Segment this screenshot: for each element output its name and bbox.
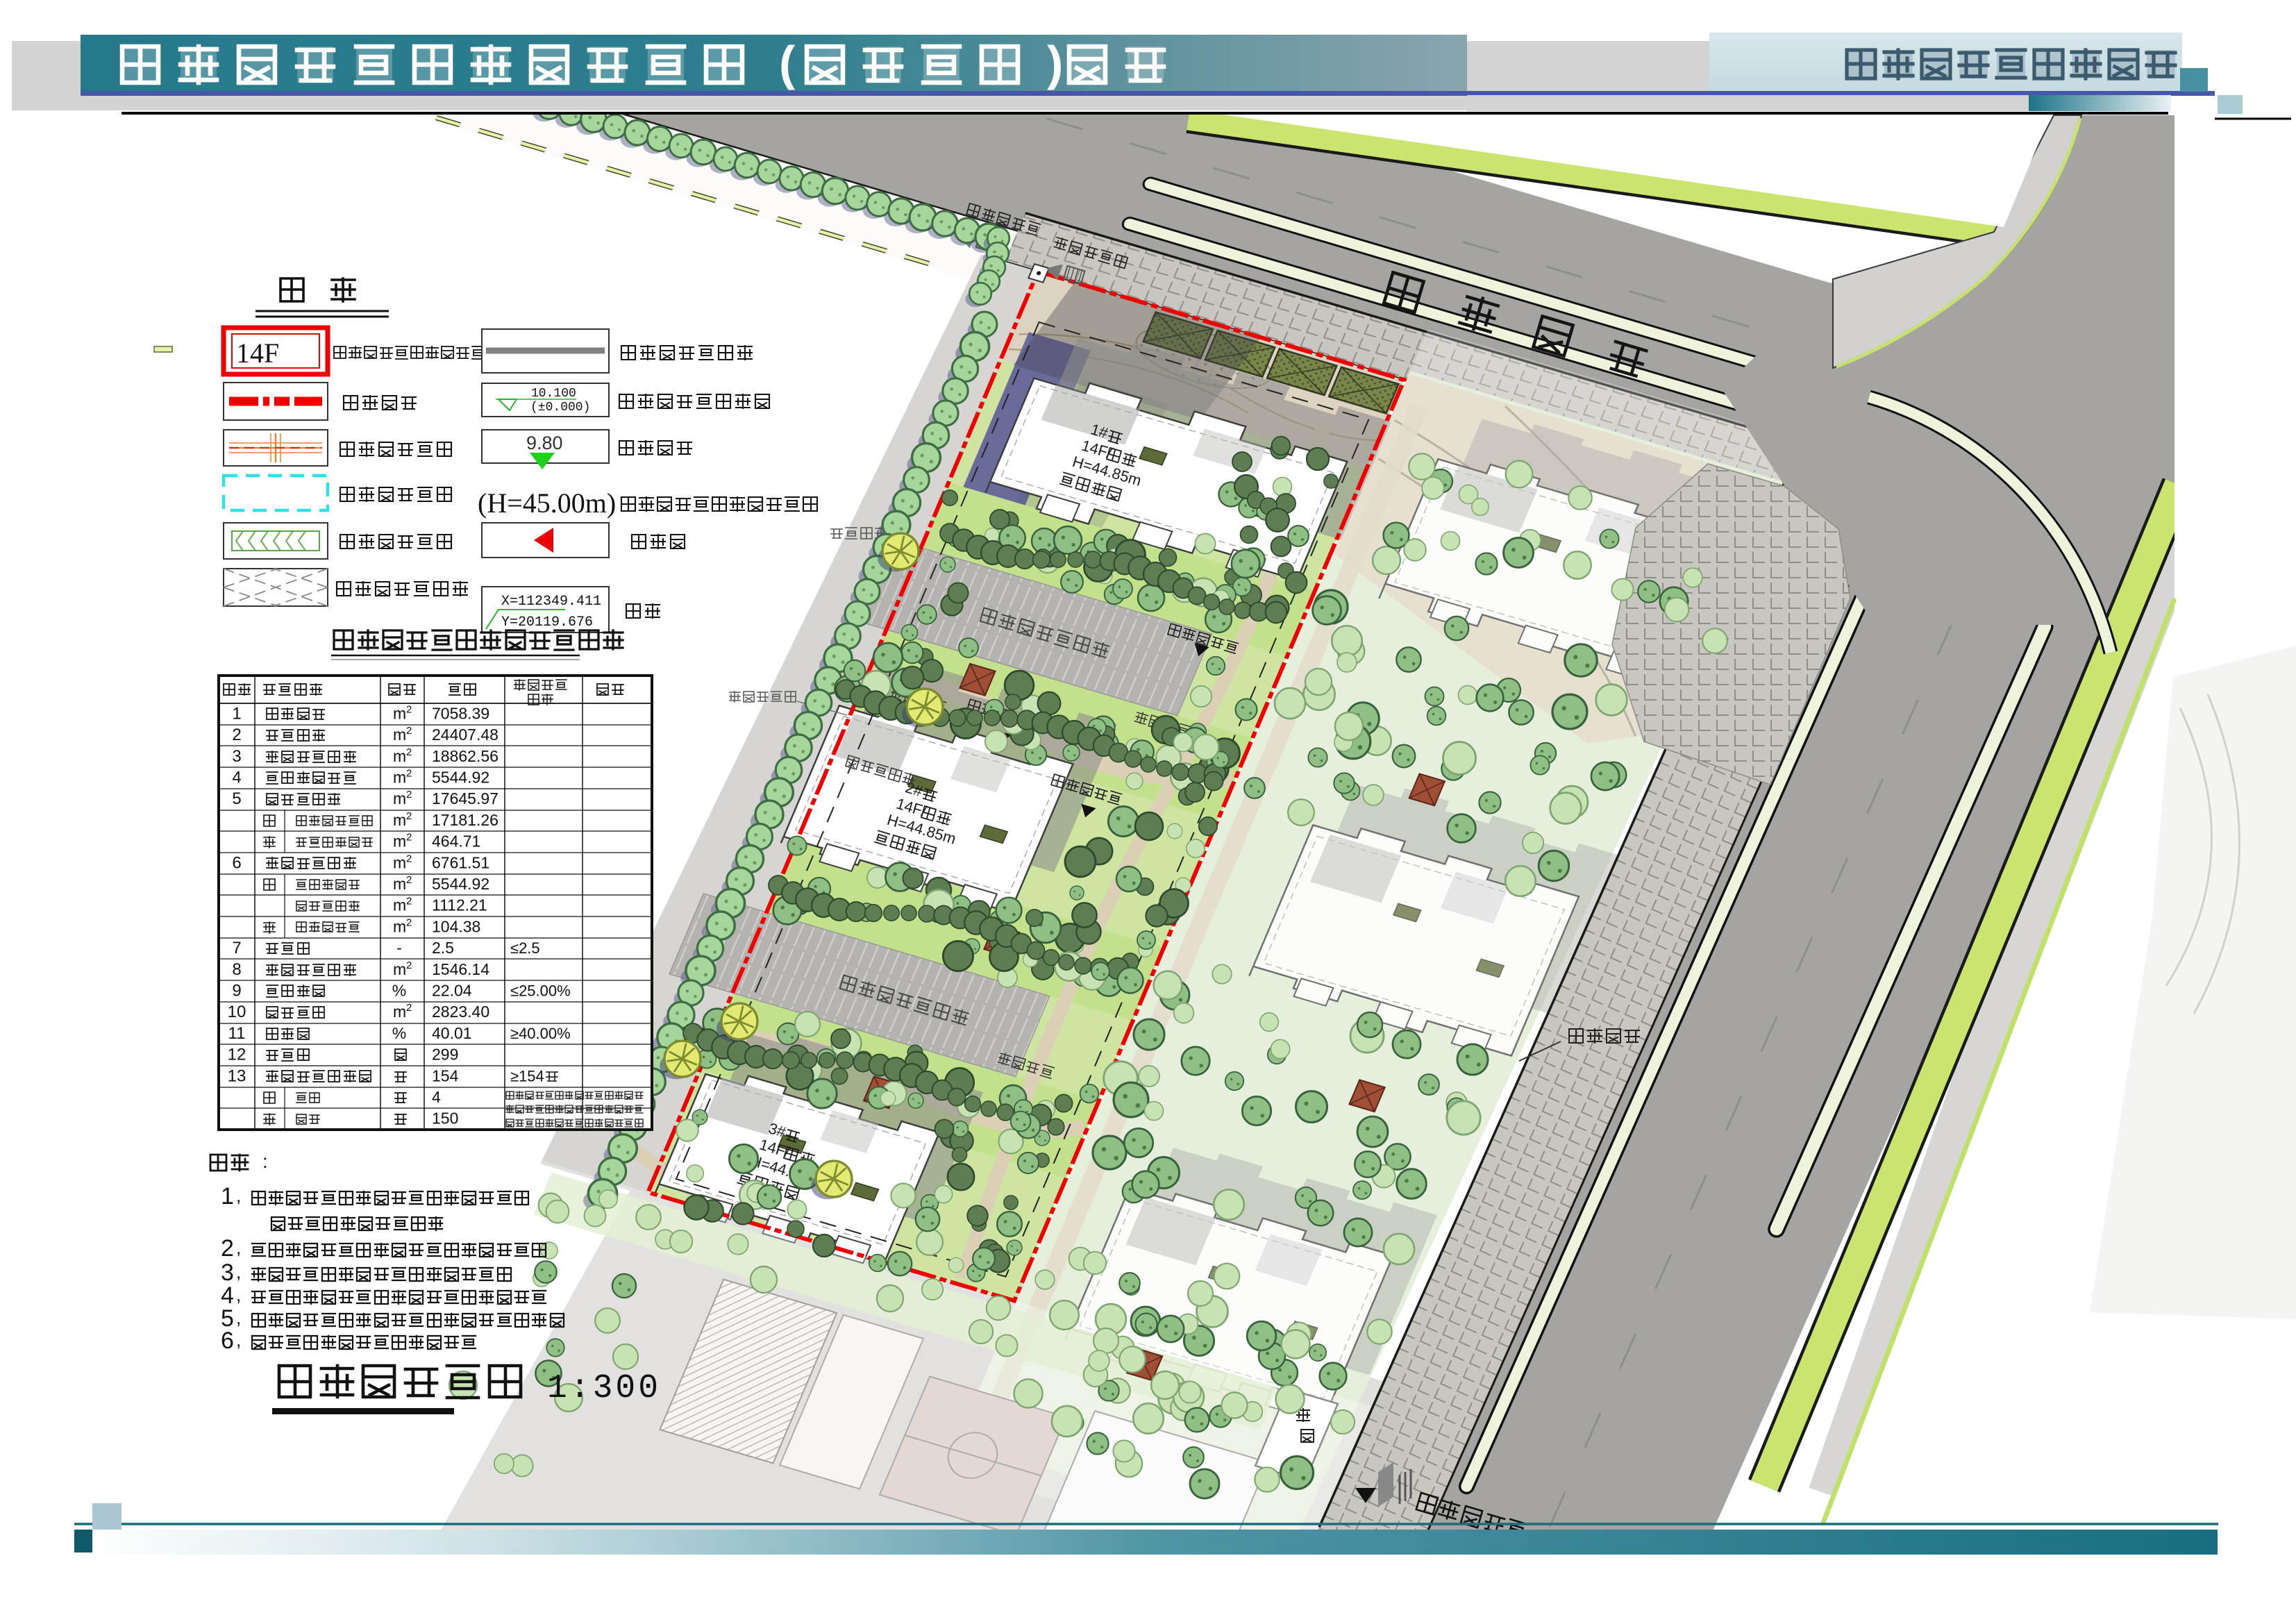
svg-text:-: - <box>396 939 402 957</box>
svg-text:m: m <box>393 896 406 914</box>
svg-text:104.38: 104.38 <box>432 917 480 935</box>
svg-text:2: 2 <box>406 960 412 971</box>
svg-text:m: m <box>393 726 406 744</box>
svg-text:m: m <box>393 1003 406 1021</box>
svg-text:,: , <box>236 1284 241 1305</box>
svg-text:2: 2 <box>406 1002 412 1014</box>
svg-text:2: 2 <box>406 896 412 907</box>
svg-text:2: 2 <box>232 726 241 744</box>
svg-text:(±0.000): (±0.000) <box>530 401 590 415</box>
svg-text:4: 4 <box>232 768 241 787</box>
svg-text:,: , <box>236 1307 241 1328</box>
svg-text:,: , <box>236 1262 241 1282</box>
svg-text:2: 2 <box>406 832 412 844</box>
svg-text:154: 154 <box>432 1066 459 1085</box>
svg-text:Y=20119.676: Y=20119.676 <box>501 614 593 630</box>
svg-text:m: m <box>393 747 406 765</box>
svg-text:≥154: ≥154 <box>510 1067 544 1085</box>
svg-text:1112.21: 1112.21 <box>432 896 487 914</box>
svg-text:2823.40: 2823.40 <box>432 1003 489 1021</box>
svg-text:2.5: 2.5 <box>432 939 454 957</box>
svg-text:17645.97: 17645.97 <box>432 789 498 807</box>
svg-text:1:300: 1:300 <box>547 1370 661 1407</box>
svg-text:5: 5 <box>232 789 241 808</box>
svg-text:5544.92: 5544.92 <box>432 768 489 786</box>
svg-text:(H=45.00m): (H=45.00m) <box>478 487 616 519</box>
svg-text:11: 11 <box>228 1024 246 1043</box>
svg-text:6: 6 <box>232 853 241 872</box>
svg-text:2: 2 <box>221 1235 234 1262</box>
svg-text:2: 2 <box>406 725 412 737</box>
svg-text:24407.48: 24407.48 <box>432 726 498 744</box>
svg-text:8: 8 <box>232 960 241 979</box>
svg-text:≤25.00%: ≤25.00% <box>510 982 571 999</box>
svg-text:2: 2 <box>406 874 412 886</box>
svg-text:150: 150 <box>432 1110 458 1128</box>
svg-text:2: 2 <box>406 789 412 801</box>
svg-text:m: m <box>393 789 406 807</box>
svg-text:m: m <box>393 875 406 893</box>
svg-text:,: , <box>236 1185 241 1206</box>
svg-text:(: ( <box>779 36 796 90</box>
svg-text:m: m <box>393 832 406 851</box>
svg-text:12: 12 <box>228 1046 246 1064</box>
svg-text:m: m <box>393 704 406 722</box>
svg-text:18862.56: 18862.56 <box>432 747 498 765</box>
svg-text:,: , <box>236 1237 241 1258</box>
svg-text:7: 7 <box>232 939 241 957</box>
svg-text:,: , <box>236 1330 241 1350</box>
svg-text:13: 13 <box>228 1066 246 1085</box>
svg-text:2: 2 <box>406 746 412 758</box>
svg-text:m: m <box>393 853 406 871</box>
svg-text:%: % <box>392 1024 406 1042</box>
svg-text:2: 2 <box>406 916 412 928</box>
svg-text:9.80: 9.80 <box>526 433 563 453</box>
svg-text:m: m <box>393 768 406 786</box>
svg-text:2: 2 <box>406 810 412 822</box>
svg-text:≤2.5: ≤2.5 <box>510 939 540 957</box>
svg-text:m: m <box>393 960 406 978</box>
svg-text:7058.39: 7058.39 <box>432 704 489 722</box>
svg-text:10.100: 10.100 <box>531 387 576 401</box>
svg-text:X=112349.411: X=112349.411 <box>501 594 601 610</box>
svg-text:%: % <box>392 981 406 999</box>
svg-text:m: m <box>393 811 406 829</box>
svg-text:m: m <box>393 917 406 935</box>
svg-text:299: 299 <box>432 1046 458 1064</box>
svg-text:≥40.00%: ≥40.00% <box>510 1025 571 1042</box>
svg-text:1: 1 <box>221 1183 234 1209</box>
svg-text:6761.51: 6761.51 <box>432 853 489 871</box>
svg-text:): ) <box>1047 36 1063 90</box>
svg-text:2: 2 <box>406 703 412 715</box>
svg-text:17181.26: 17181.26 <box>432 811 498 829</box>
svg-text:1546.14: 1546.14 <box>432 960 489 978</box>
svg-text:9: 9 <box>232 981 241 1000</box>
svg-text:40.01: 40.01 <box>432 1024 472 1042</box>
svg-text:5544.92: 5544.92 <box>432 875 489 893</box>
svg-text:6: 6 <box>221 1328 234 1354</box>
svg-text:1: 1 <box>232 704 241 723</box>
svg-text:2: 2 <box>406 767 412 779</box>
svg-text::: : <box>262 1150 268 1172</box>
svg-text:464.71: 464.71 <box>432 832 480 851</box>
svg-text:4: 4 <box>432 1088 441 1106</box>
svg-text:10: 10 <box>228 1003 246 1021</box>
svg-text:2: 2 <box>406 853 412 864</box>
svg-text:14F: 14F <box>236 337 279 369</box>
svg-text:3: 3 <box>232 747 241 766</box>
svg-text:22.04: 22.04 <box>432 981 472 999</box>
